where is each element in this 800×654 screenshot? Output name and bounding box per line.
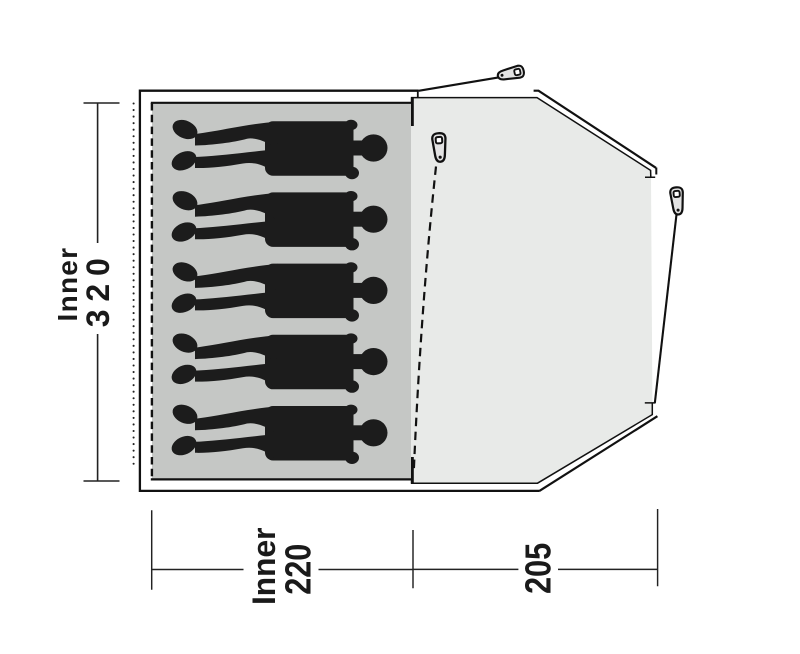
svg-text:205: 205 (518, 543, 559, 594)
svg-text:220: 220 (278, 544, 319, 595)
svg-text:Inner: Inner (246, 528, 282, 606)
svg-text:Inner: Inner (52, 248, 83, 322)
svg-text:320: 320 (80, 258, 116, 327)
